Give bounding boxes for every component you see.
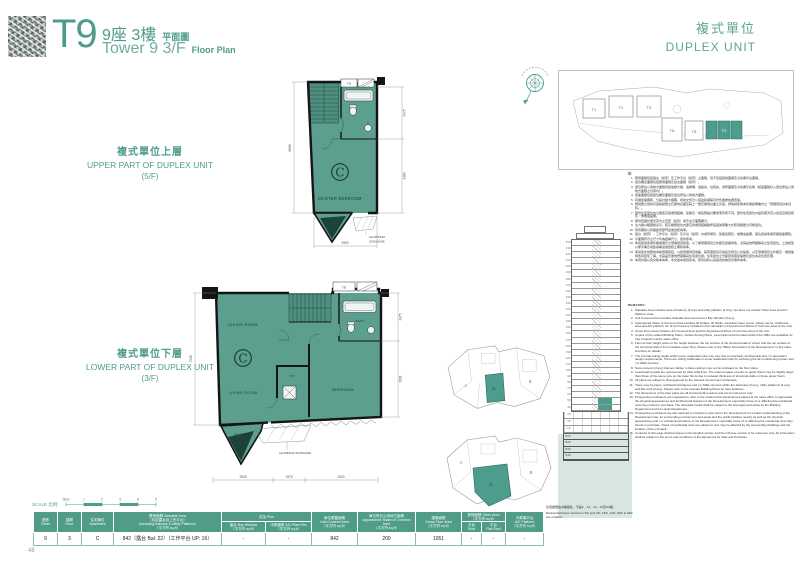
cell-floor: 3 [58,532,82,545]
col-ac-platform: 冷氣機平台A/C Platform（平方呎 sq.ft） [506,512,544,533]
cell-apartment: C [82,532,114,545]
upper-part-zh: 複式單位上層 [55,143,245,158]
scale-mark-2: 2 [101,498,103,502]
keyplan-unit-a: A [460,460,463,465]
bedroom-label: BEDROOM [332,388,354,392]
duplex-unit-label: 複式單位 DUPLEX UNIT [666,18,756,54]
duplex-label-en: DUPLEX UNIT [666,40,756,54]
dim-right-top: 2475 [403,109,407,116]
upper-part-en: UPPER PART OF DUPLEX UNIT [55,160,245,170]
cell-flat-roof: - [482,532,506,545]
dining-room-label: DINING ROOM [228,323,257,327]
upper-balcony [314,213,352,242]
scale-mark-3: 3 [119,498,121,502]
lower-floor-plan: BATH KIT. TD [183,278,423,493]
site-key-plan: T1 T2 T3 T6 T8 T9 [558,70,794,170]
tower-section: 35/F33/F32/F31/F30/F29/F28/F27/F26/F25/F… [558,226,632,510]
col-gross-floor-area: 建築面積Gross Floor Area（平方呎 sq.ft） [416,512,462,533]
tower-podium: 2/F1/FG/F [563,412,629,434]
cell-ac-plant: - [266,532,312,545]
bathtub [344,90,373,101]
title-en-text: Tower 9 3/F [102,40,186,57]
col-flat-roof: 平台Flat Roof [482,522,506,532]
col-unit-covered: 單位覆蓋面積Unit Covered Area（平方呎 sq.ft） [312,512,358,533]
unit-letter: C [238,351,247,365]
dim-left: 6668 [288,144,292,151]
kitchen-label: KIT. [290,374,297,378]
sunshade-annotation: ALUMINIUM SUNSHADE [255,420,376,455]
sunshade-annotation: ALUMINIUM SUNSHADE [353,216,386,244]
balcony: BALCONY [221,423,263,464]
page-title-en: Tower 9 3/FFloor Plan [102,40,236,58]
floor-note-en: Residential floors start from 3/F and 4/… [546,511,634,519]
col-roof: 天台Roof [462,522,482,532]
scale-mark-4: 4 [137,498,139,502]
cell-unit-covered: 842 [312,532,358,545]
col-bay-window: 窗台 Bay Window（平方呎 sq.ft） [222,522,266,532]
upper-part-floor: (5/F) [55,172,245,181]
bathtub [343,301,376,313]
dim-right-bottom: 3381 [399,375,403,382]
siteplan-tower-t1: T1 [592,107,597,112]
cell-bay-window: - [222,532,266,545]
duct-boxes: TD [333,282,377,291]
scale-mark-5: 5 [155,498,157,502]
toilet [350,107,357,116]
keyplan-unit-b: B [529,379,532,384]
col-common-area: 單位所佔公用地方面積Apportioned Share of Common Ar… [358,512,416,533]
dim-right-top: 2475 [399,313,403,320]
toilet [348,324,355,333]
area-table: 座數Tower 樓層Floor 住宅單位Apartment 實用面積 Salea… [33,511,544,546]
col-plus: 另加 Plus [222,512,312,522]
keyplan-unit-b: B [530,470,533,475]
col-tower: 座數Tower [34,512,58,533]
bath-label: BATH [356,319,365,323]
siteplan-tower-t3: T3 [647,105,652,110]
scale-mark-0: 0(m) [63,498,70,502]
cell-ac-platform: - [506,532,544,545]
notes-zh-list: 1.實用面積包括露台（如有）及工作平台（如有）之面積，但不包括其他面積及冷氣機平… [628,177,795,263]
key-plan-lower: A B C [437,428,557,520]
tower-basement: B1/FB2/FB3/FB4/F [563,434,629,461]
upper-floor-plan: TD ALUMINIUM SUNSHADE C MASTER BEDROOM [280,72,425,257]
title-en-suffix: Floor Plan [192,45,236,55]
compass-icon [516,66,554,112]
master-bedroom-label: MASTER BEDROOM [318,196,362,201]
dim-right-bottom: 3383 [403,172,407,179]
dim-bottom-3: 3300 [337,475,344,479]
remarks: REMARKS: 1.Saleable Area includes area o… [628,304,795,440]
dim-bottom-1: 2825 [239,475,246,479]
scale-mark-1: 1 [83,498,85,502]
cell-roof: - [462,532,482,545]
cell-tower: 9 [34,532,58,545]
col-other-area: 其他面積 Other Area（平方呎 sq.ft） [462,512,506,522]
floor-note: 住宅樓層由3樓開始，不設4、13、14、24及34樓。 Residential … [546,505,634,519]
cell-common-area: 209 [358,532,416,545]
scale-bar-label: SCALE 比例 [32,501,58,508]
basin [365,125,372,132]
tower-floors: 35/F33/F32/F31/F30/F29/F28/F27/F26/F25/F… [571,239,621,412]
table-row: 9 3 C 842（露台 Bal: 22）（工作平台 UP: 16） - - 8… [34,532,544,545]
col-apartment: 住宅單位Apartment [82,512,114,533]
brochure-page: T9 9座 3樓平面圖 Tower 9 3/FFloor Plan 複式單位 D… [0,0,800,565]
notes-zh: 註： 1.實用面積包括露台（如有）及工作平台（如有）之面積，但不包括其他面積及冷… [628,172,795,264]
floor-note-zh: 住宅樓層由3樓開始，不設4、13、14、24及34樓。 [546,505,634,509]
cell-saleable: 842（露台 Bal: 22）（工作平台 UP: 16） [114,532,222,545]
duplex-label-zh: 複式單位 [666,18,756,37]
col-saleable-area: 實用面積 Saleable Area（包括露台及工作平台）(including … [114,512,222,533]
key-plan-upper: A B C [437,338,557,426]
unit-letter: C [335,165,344,179]
siteplan-tower-t9: T9 [722,128,727,133]
page-number: 48 [28,548,35,554]
cell-gfa: 1051 [416,532,462,545]
remarks-list: 1.Saleable Area includes area of balcony… [628,309,795,440]
dim-bottom: 3900 [341,241,348,245]
logo-texture-image [8,16,46,57]
dim-bottom-2: 1575 [285,475,292,479]
upper-part-label: 複式單位上層 UPPER PART OF DUPLEX UNIT (5/F) [55,143,245,181]
tower-logo: T9 [52,14,97,54]
sunshade-label-1: ALUMINIUM [369,235,385,239]
balcony-label: BALCONY [235,433,250,437]
siteplan-tower-t8: T8 [692,129,697,134]
basin [368,327,375,334]
siteplan-tower-t6: T6 [670,128,675,133]
siteplan-tower-t2: T2 [619,105,624,110]
living-room-label: LIVING ROOM [229,391,258,395]
sunshade-label: ALUMINIUM SUNSHADE [279,451,311,455]
col-floor: 樓層Floor [58,512,82,533]
dim-left: 7948 [189,355,193,362]
tower-section-roof [584,226,606,233]
keyplan-unit-a: A [464,383,467,388]
col-ac-plant-rm: 冷氣機房 A/C Plant Rm（平方呎 sq.ft） [266,522,312,532]
